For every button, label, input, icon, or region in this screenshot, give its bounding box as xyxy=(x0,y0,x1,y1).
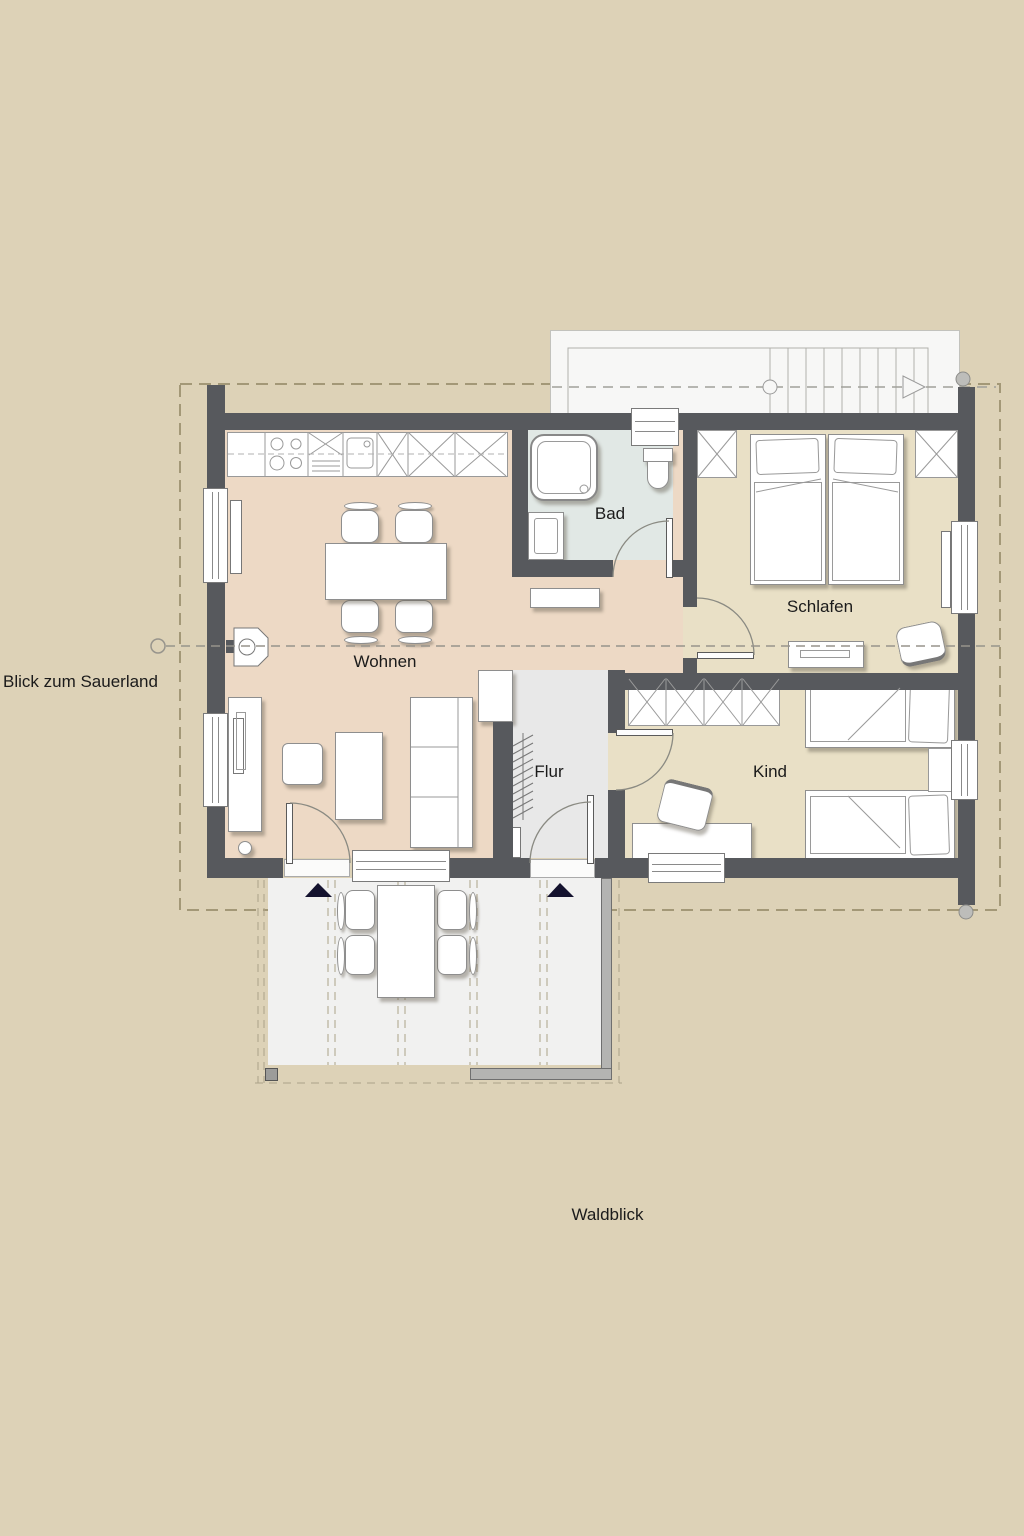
dining-chair-back xyxy=(398,502,432,510)
wall-schlafen-kind xyxy=(608,673,958,690)
toilet-cistern xyxy=(643,448,673,462)
dining-chair xyxy=(395,510,433,543)
wall xyxy=(207,583,225,713)
wall xyxy=(207,858,283,878)
window-wohnen-terrace xyxy=(352,850,450,882)
blanket xyxy=(810,684,906,742)
wall xyxy=(958,800,975,905)
room-label-kind: Kind xyxy=(730,762,810,782)
window-wohnen-left-1 xyxy=(203,488,228,583)
terrace-chair xyxy=(437,935,467,975)
window-bad xyxy=(631,408,679,446)
terrace-chair-back xyxy=(337,937,345,975)
entrance-threshold xyxy=(530,859,595,878)
stair-walk-line xyxy=(552,376,996,398)
window-schlafen xyxy=(951,521,978,614)
blanket xyxy=(810,796,906,854)
terrace-chair xyxy=(437,890,467,930)
floorplan-page: { "plan": { "type": "apartment-floor-pla… xyxy=(0,0,1024,1536)
coffee-table xyxy=(335,732,383,820)
blanket xyxy=(754,482,822,581)
view-label-left: Blick zum Sauerland xyxy=(3,672,158,692)
sofa xyxy=(410,697,473,848)
wall xyxy=(207,413,633,430)
floor-lamp xyxy=(238,841,252,855)
wardrobe xyxy=(697,430,737,478)
dining-chair xyxy=(395,600,433,633)
sideboard-hall xyxy=(530,588,600,608)
dining-chair xyxy=(341,600,379,633)
flur-cabinet xyxy=(478,670,513,722)
pillow xyxy=(908,794,950,855)
kitchen-counter xyxy=(227,432,508,477)
door-leaf-kind xyxy=(616,729,673,736)
dresser-detail xyxy=(800,650,850,658)
terrace-table xyxy=(377,885,435,998)
wall xyxy=(725,858,965,878)
shower xyxy=(530,434,598,501)
dining-chair xyxy=(341,510,379,543)
wall-flur-left xyxy=(493,722,513,863)
sideboard-detail xyxy=(236,712,246,770)
window-kind-bottom xyxy=(648,853,725,883)
wall xyxy=(958,613,975,742)
terrace-chair-back xyxy=(469,937,477,975)
wall-bad-left xyxy=(512,430,528,577)
dining-chair-back xyxy=(398,636,432,644)
sink-basin xyxy=(534,518,558,554)
door-leaf-entrance xyxy=(587,795,594,864)
wall xyxy=(207,385,225,413)
kind-door-gap xyxy=(608,733,625,790)
pillow xyxy=(755,438,819,475)
terrace-chair xyxy=(345,935,375,975)
radiator xyxy=(230,500,242,574)
door-leaf-bad xyxy=(666,518,673,578)
wall-bad-bottom xyxy=(512,560,613,577)
wall xyxy=(677,413,975,430)
dining-chair-back xyxy=(344,636,378,644)
door-leaf-terrace xyxy=(286,803,293,864)
toilet-bowl xyxy=(647,461,669,489)
terrace-chair-back xyxy=(337,892,345,930)
dining-chair-back xyxy=(344,502,378,510)
room-label-schlafen: Schlafen xyxy=(760,597,880,617)
wall xyxy=(958,387,975,523)
window-kind-right xyxy=(951,740,978,800)
door-leaf-schlafen xyxy=(697,652,754,659)
room-label-flur: Flur xyxy=(514,762,584,782)
wall-kind-left-upper xyxy=(608,670,625,733)
terrace-chair xyxy=(345,890,375,930)
pillow xyxy=(833,438,897,475)
terrace-chair-back xyxy=(469,892,477,930)
view-label-bottom: Waldblick xyxy=(540,1205,675,1225)
armchair xyxy=(282,743,323,785)
schlafen-door-gap xyxy=(683,607,697,658)
wardrobe xyxy=(915,430,958,478)
shower-tray xyxy=(537,441,591,494)
window-wohnen-left-2 xyxy=(203,713,228,807)
radiator xyxy=(941,531,951,608)
room-label-bad: Bad xyxy=(580,504,640,524)
pillow xyxy=(908,682,950,743)
dining-table xyxy=(325,543,447,600)
wall xyxy=(450,858,530,878)
bathroom-sink xyxy=(528,512,564,560)
room-label-wohnen: Wohnen xyxy=(330,652,440,672)
wall-kind-left-lower xyxy=(608,790,625,878)
wall-schlafen-left xyxy=(683,413,697,607)
blanket xyxy=(832,482,900,581)
terrace-door-threshold xyxy=(284,859,350,877)
